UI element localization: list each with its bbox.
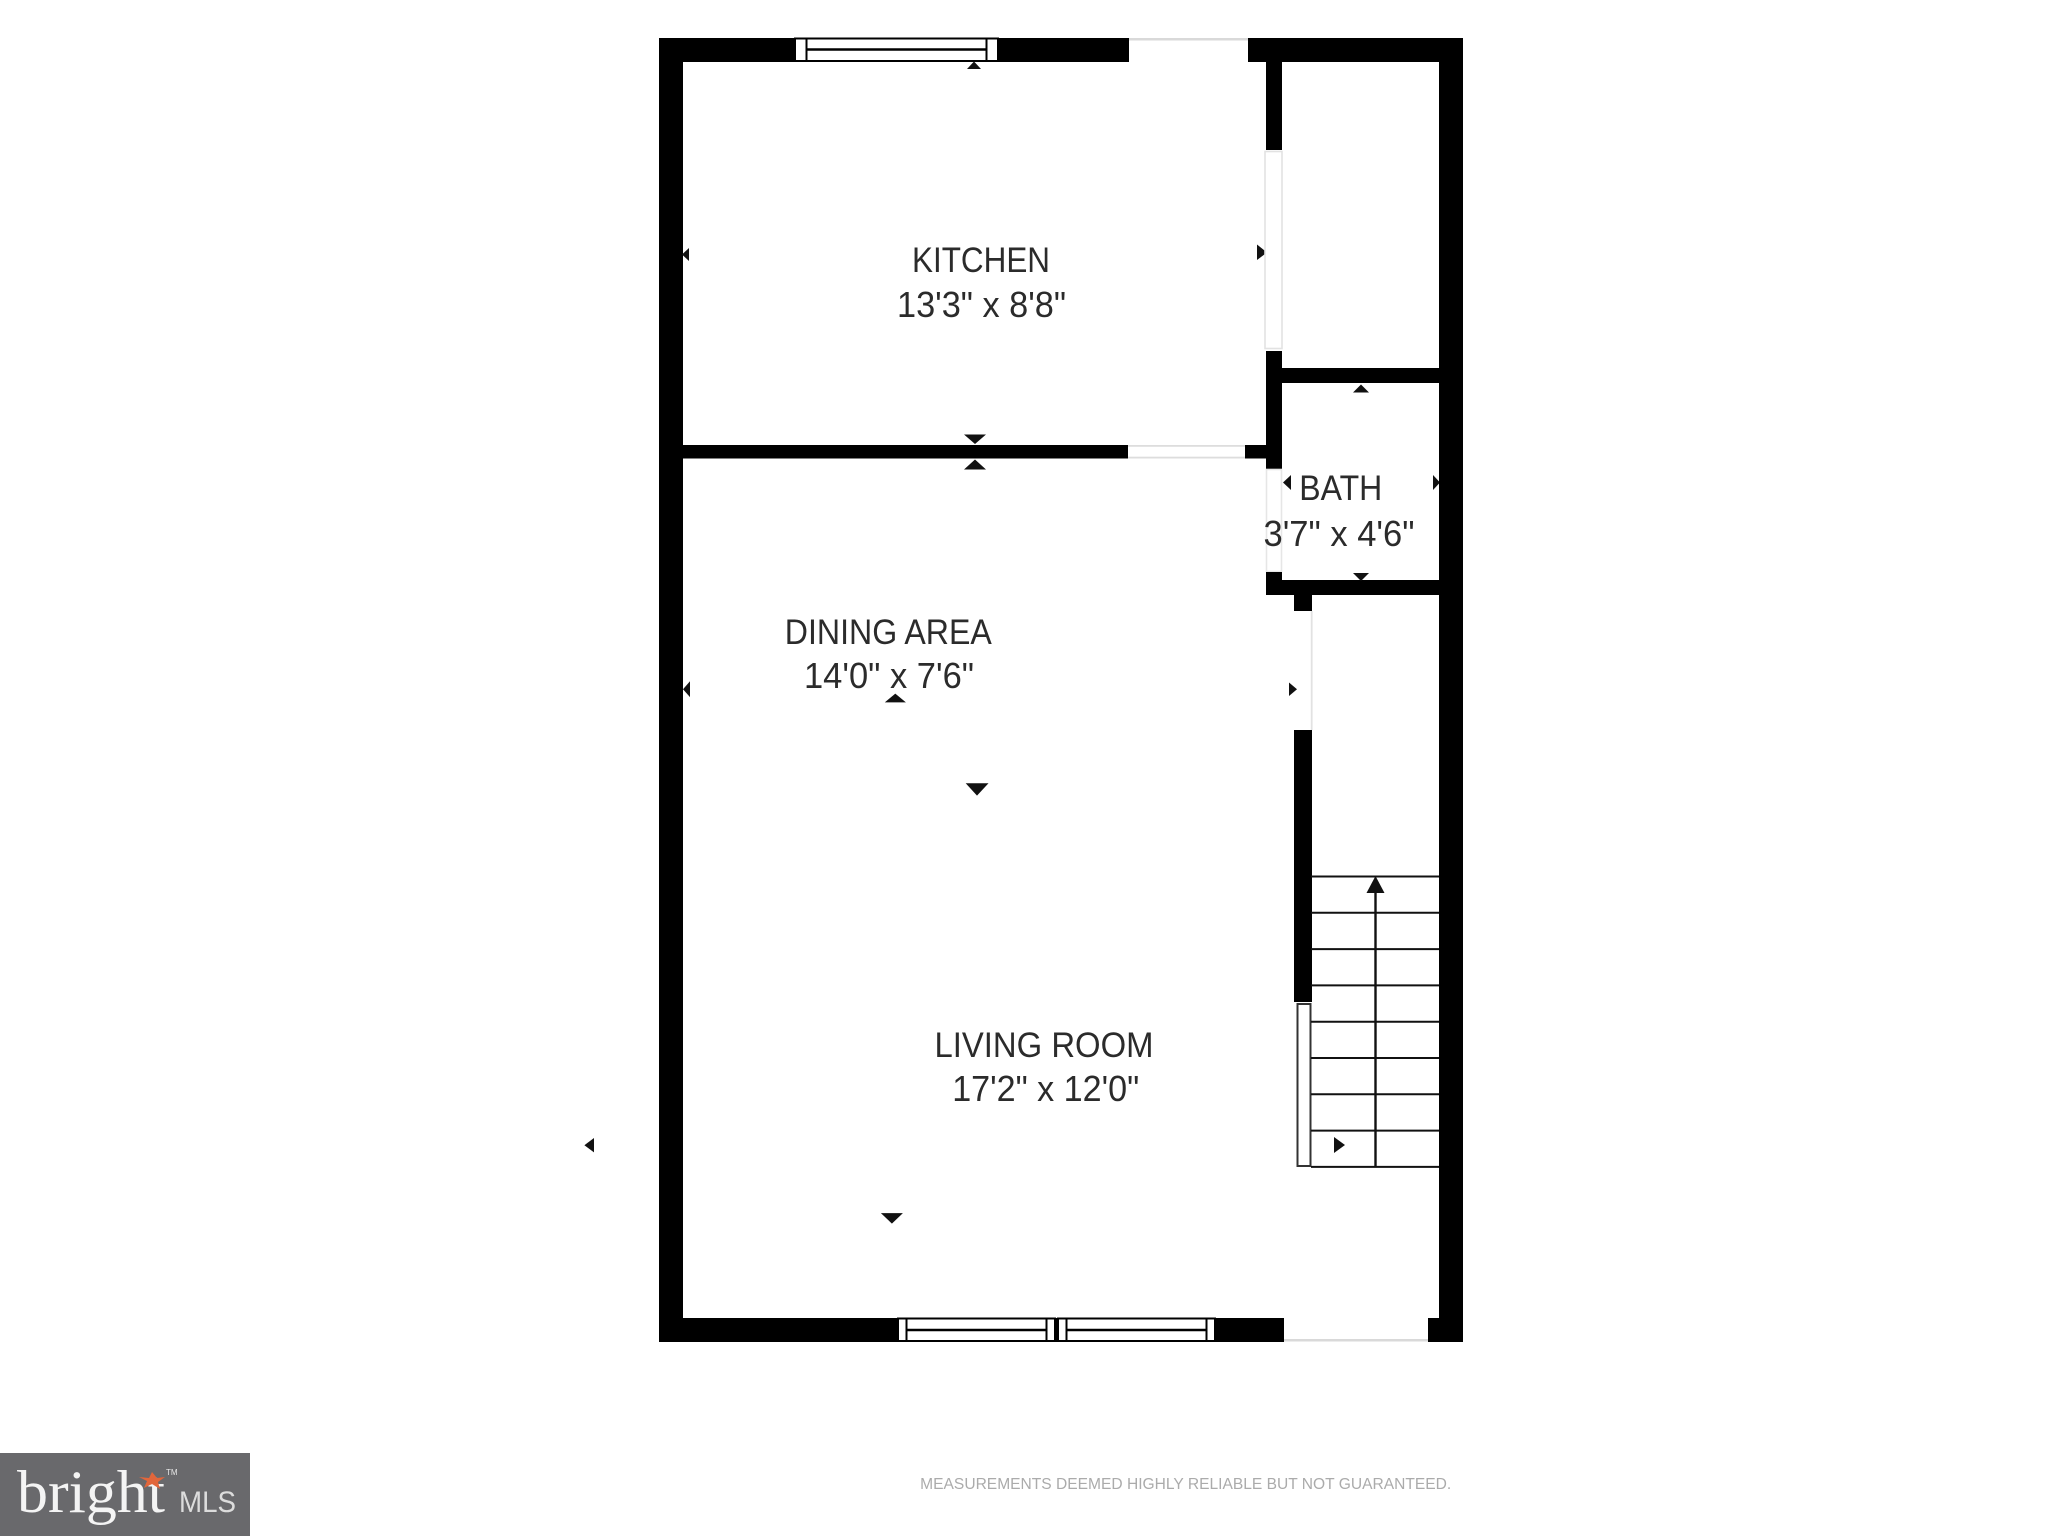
svg-text:17'2" x 12'0": 17'2" x 12'0" — [952, 1068, 1139, 1109]
svg-text:TM: TM — [166, 1468, 178, 1477]
svg-text:BATH: BATH — [1299, 469, 1382, 508]
svg-text:DINING AREA: DINING AREA — [785, 613, 993, 652]
svg-text:14'0" x 7'6": 14'0" x 7'6" — [804, 655, 974, 696]
svg-text:MEASUREMENTS DEEMED HIGHLY REL: MEASUREMENTS DEEMED HIGHLY RELIABLE BUT … — [920, 1476, 1451, 1493]
svg-text:MLS: MLS — [179, 1486, 236, 1519]
svg-text:KITCHEN: KITCHEN — [912, 241, 1050, 280]
svg-text:bright: bright — [17, 1459, 165, 1525]
svg-text:13'3" x 8'8": 13'3" x 8'8" — [897, 284, 1066, 325]
svg-text:3'7" x 4'6": 3'7" x 4'6" — [1264, 513, 1415, 554]
svg-text:LIVING ROOM: LIVING ROOM — [935, 1026, 1154, 1065]
